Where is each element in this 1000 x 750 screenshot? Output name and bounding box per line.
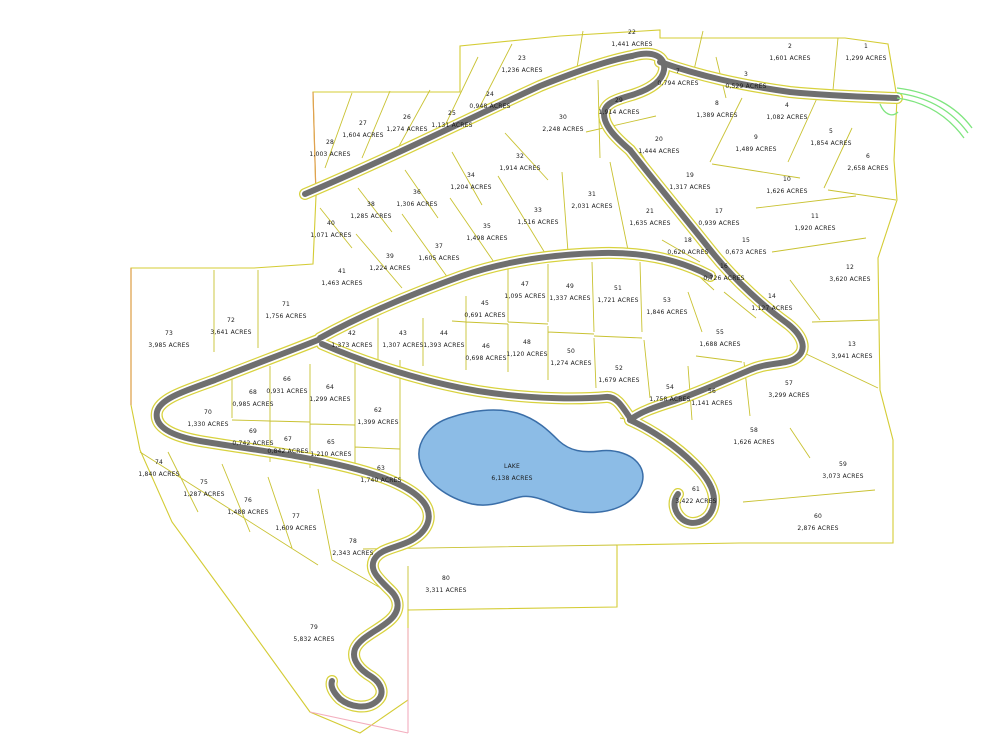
plat-map-drawing [0, 0, 1000, 750]
lake-shape [419, 410, 643, 512]
subdivision-boundary [131, 30, 897, 733]
plat-map-canvas: 11,299 ACRES21,601 ACRES30,529 ACRES41,0… [0, 0, 1000, 750]
west-boundary-orange-lines [131, 92, 316, 405]
